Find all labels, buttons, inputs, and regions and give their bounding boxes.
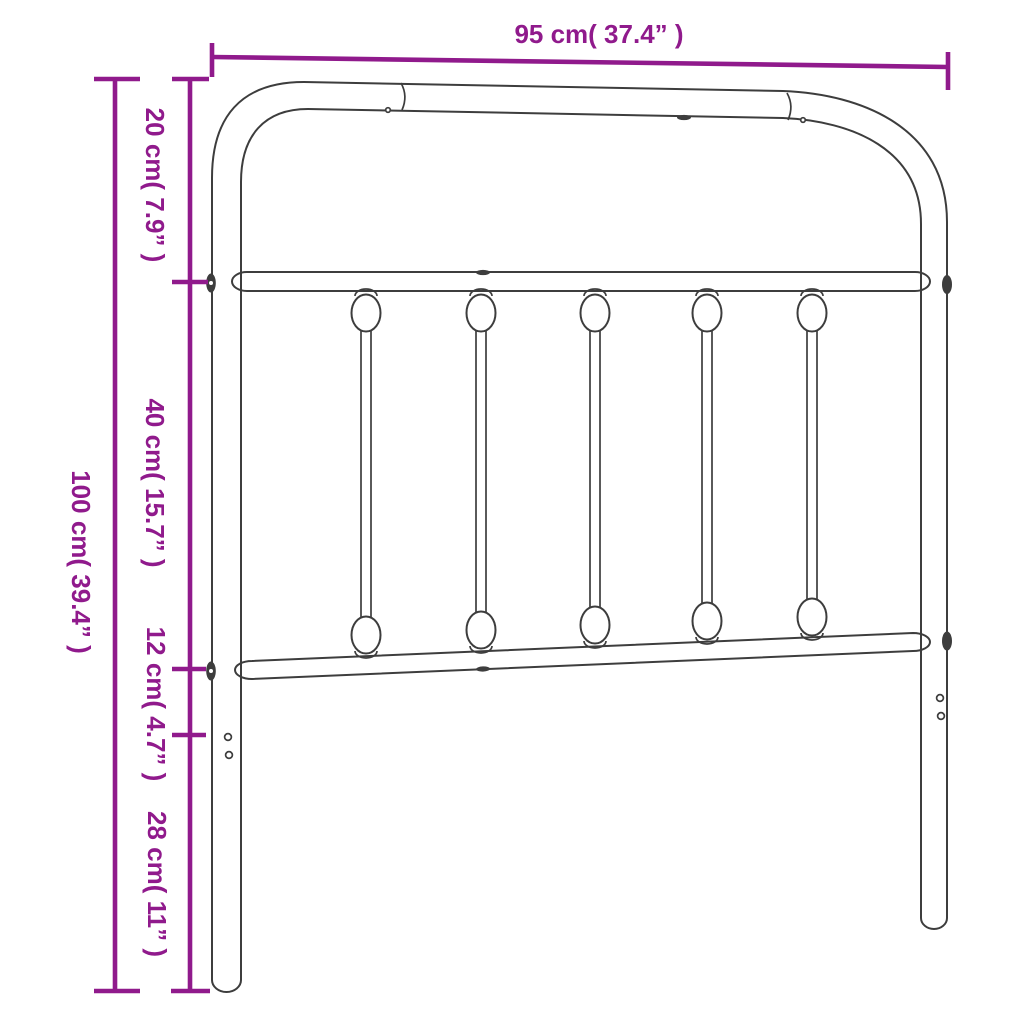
- dimension-middle-segment-label: 40 cm( 15.7” ): [142, 398, 168, 567]
- lower-rail: [235, 633, 930, 679]
- weld-dot-upper-rail: [476, 270, 490, 275]
- weld-seams: [386, 83, 806, 672]
- dimension-total-height-label: 100 cm( 39.4” ): [68, 470, 94, 654]
- right-leg-foot-cap: [921, 918, 947, 929]
- headboard-dimension-diagram: 95 cm( 37.4” ) 100 cm( 39.4” ) 20 cm( 7.…: [0, 0, 1024, 1024]
- dimension-width-label: 95 cm( 37.4” ): [514, 21, 683, 47]
- dimension-rail-segment-label: 12 cm( 4.7” ): [143, 627, 169, 782]
- spindle: [467, 289, 496, 653]
- width-dimension-line: [212, 57, 948, 67]
- spindle: [352, 289, 381, 658]
- dimension-bottom-segment-label: 28 cm( 11” ): [144, 811, 170, 957]
- spindle: [798, 289, 827, 640]
- weld-dot-top-bar: [677, 115, 691, 120]
- frame-tube: [212, 82, 947, 992]
- spindle: [581, 289, 610, 648]
- dimension-lines: [94, 43, 948, 991]
- screw-holes: [225, 695, 945, 759]
- spindle: [693, 289, 722, 644]
- left-leg-foot-cap: [212, 980, 241, 992]
- dimension-top-segment-label: 20 cm( 7.9” ): [142, 108, 168, 263]
- upper-rail: [232, 272, 930, 291]
- spindles: [352, 289, 827, 658]
- bolts: [206, 274, 952, 681]
